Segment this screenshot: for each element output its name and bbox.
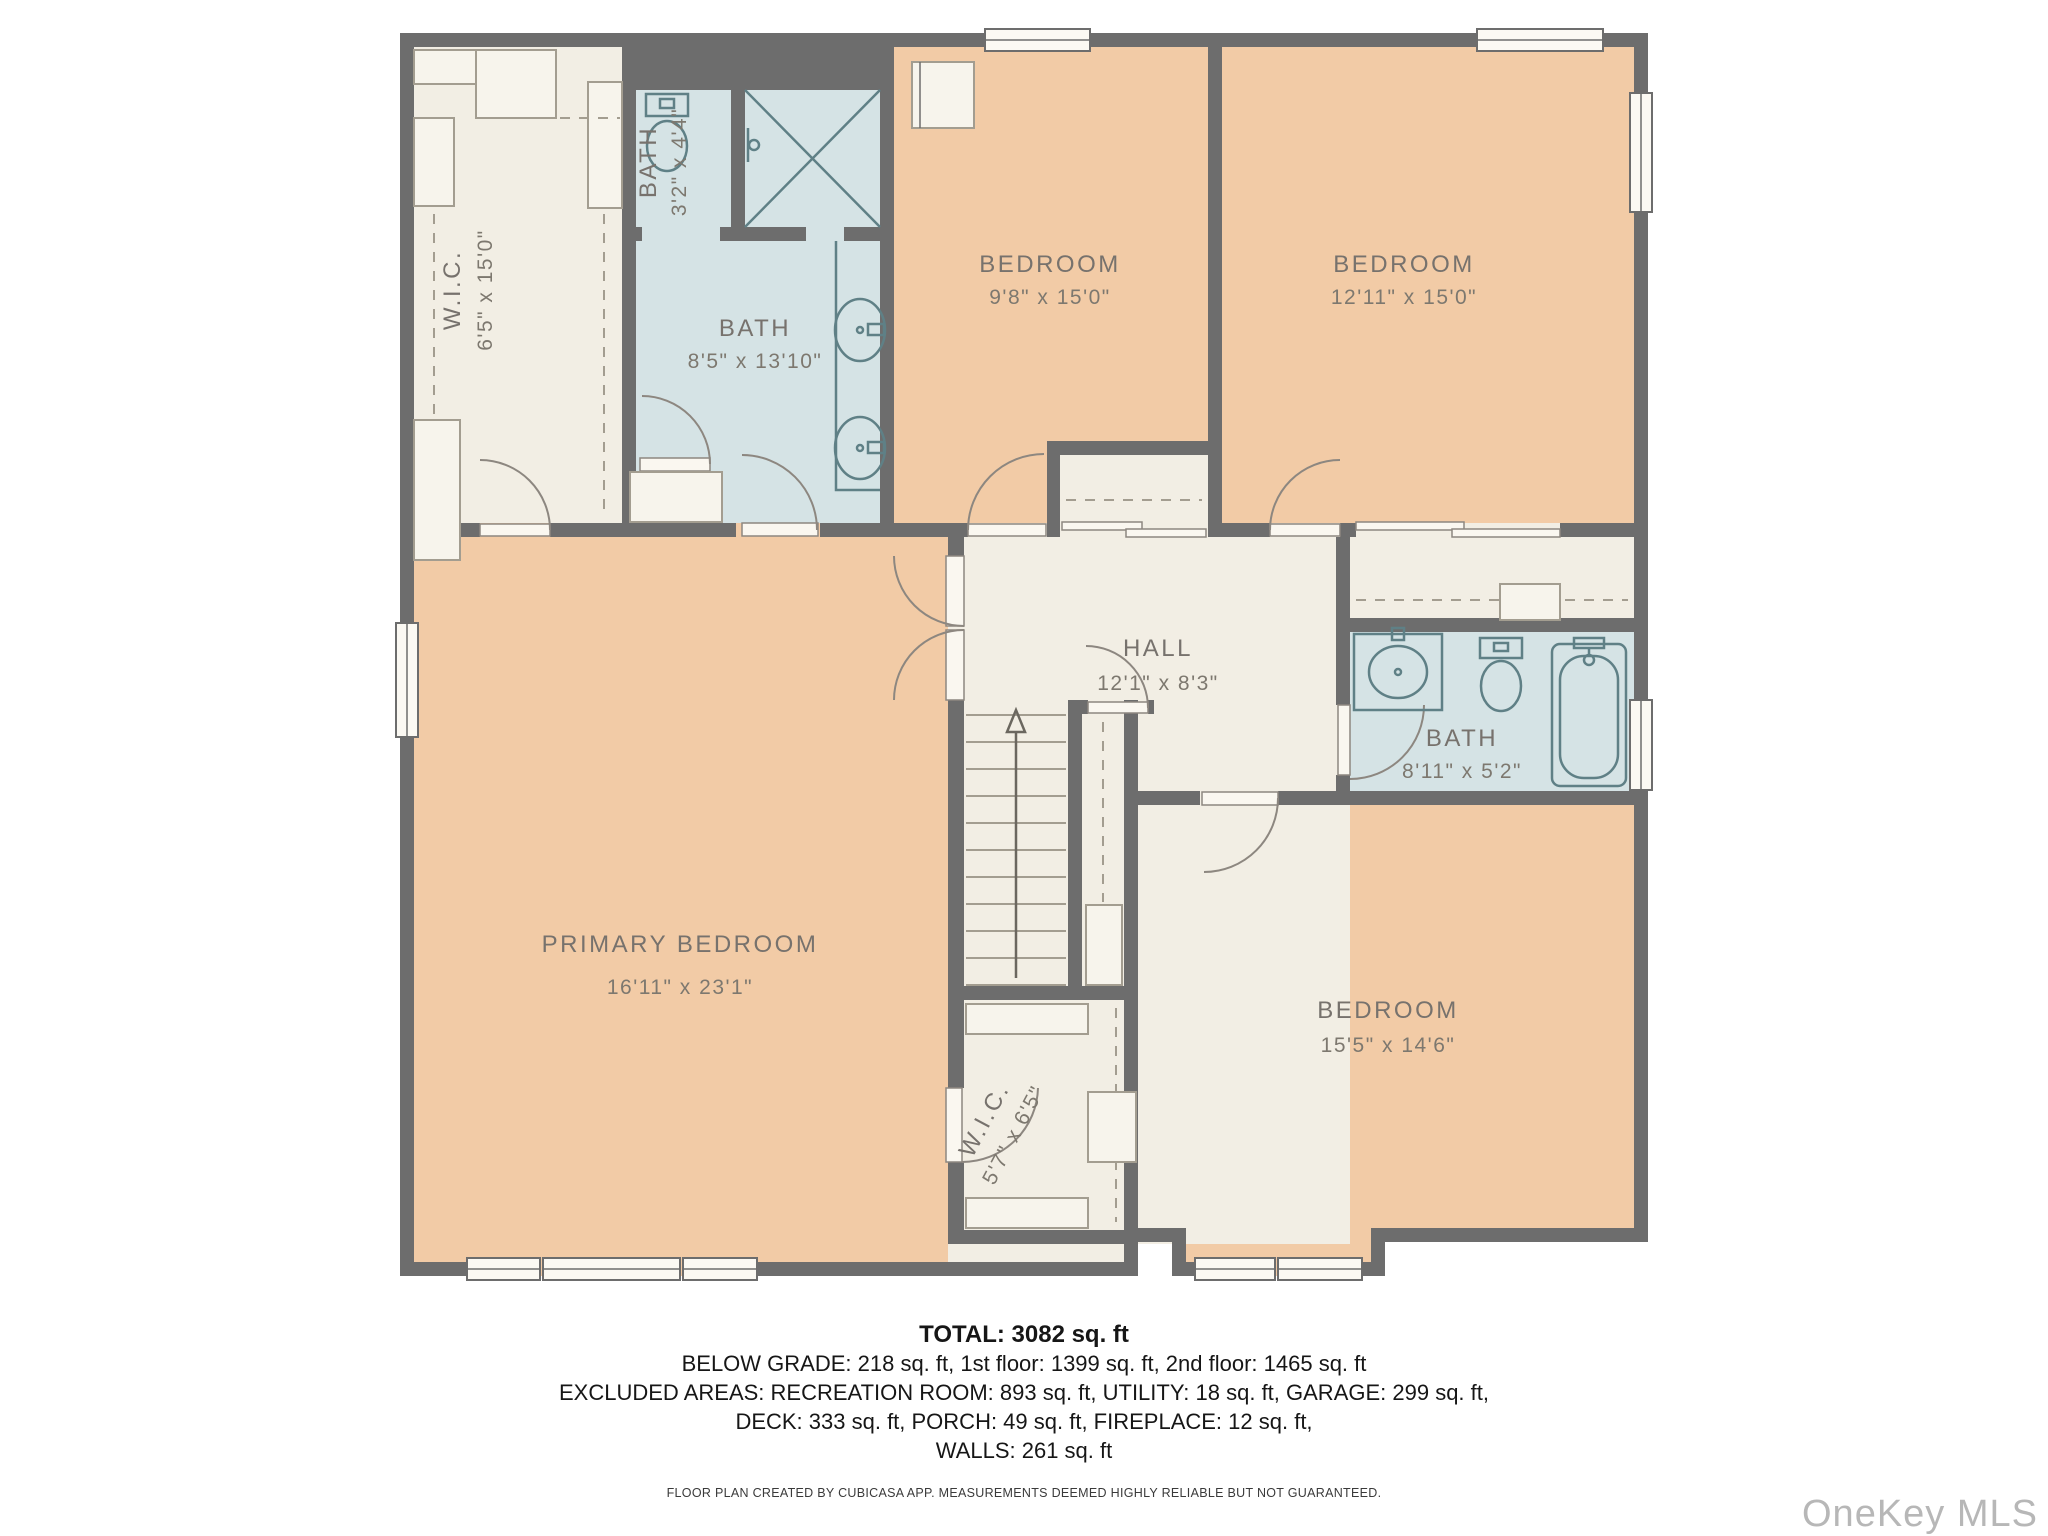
svg-text:HALL: HALL — [1123, 635, 1193, 662]
closet-box — [1088, 1092, 1136, 1162]
wardrobe-box — [1500, 584, 1560, 620]
svg-text:3'2" x 4'4": 3'2" x 4'4" — [668, 108, 691, 216]
svg-text:BEDROOM: BEDROOM — [1317, 997, 1459, 1024]
windows-primary-bottom — [467, 1258, 757, 1280]
bedroom-right-closet — [1336, 523, 1648, 632]
summary-line: EXCLUDED AREAS: RECREATION ROOM: 893 sq.… — [559, 1380, 1489, 1405]
svg-text:15'5" x 14'6": 15'5" x 14'6" — [1321, 1034, 1456, 1057]
svg-text:BEDROOM: BEDROOM — [979, 251, 1121, 278]
wardrobe-bedroom-mid — [912, 62, 974, 128]
closet-panel — [1086, 905, 1122, 985]
svg-text:BATH: BATH — [719, 315, 791, 342]
wardrobe-box — [414, 50, 476, 84]
summary-line: BELOW GRADE: 218 sq. ft, 1st floor: 1399… — [682, 1351, 1367, 1376]
window-right-bedroom-side — [1630, 93, 1652, 212]
window-bath-hall-side — [1630, 700, 1652, 790]
window-primary-left — [396, 623, 418, 737]
disclaimer-text: FLOOR PLAN CREATED BY CUBICASA APP. MEAS… — [667, 1486, 1382, 1500]
summary-line: DECK: 333 sq. ft, PORCH: 49 sq. ft, FIRE… — [735, 1409, 1312, 1434]
onekey-mls-watermark: OneKey MLS — [1802, 1493, 2038, 1535]
window-top-mid-bedroom — [985, 29, 1090, 51]
closet-shelf — [966, 1198, 1088, 1228]
wardrobe-box — [588, 82, 622, 208]
svg-text:BATH: BATH — [635, 126, 662, 198]
svg-text:16'11" x 23'1": 16'11" x 23'1" — [607, 976, 753, 999]
svg-text:9'8" x 15'0": 9'8" x 15'0" — [989, 286, 1111, 309]
windows-bedroom-bay — [1195, 1258, 1362, 1280]
room-primary-bedroom — [400, 523, 964, 1276]
svg-text:12'1" x 8'3": 12'1" x 8'3" — [1097, 672, 1219, 695]
floor-plan-page: W.I.C. 6'5" x 15'0" BATH 3'2" x 4'4" BAT… — [0, 0, 2048, 1536]
svg-text:W.I.C.: W.I.C. — [439, 250, 466, 330]
total-area-text: TOTAL: 3082 sq. ft — [919, 1321, 1129, 1348]
floor-plan-canvas: W.I.C. 6'5" x 15'0" BATH 3'2" x 4'4" BAT… — [0, 0, 2048, 1536]
window-top-right-bedroom — [1477, 29, 1603, 51]
wardrobe-box — [476, 50, 556, 118]
svg-text:12'11" x 15'0": 12'11" x 15'0" — [1331, 286, 1477, 309]
wardrobe-box — [414, 420, 460, 560]
svg-text:8'11" x 5'2": 8'11" x 5'2" — [1402, 760, 1522, 783]
svg-text:8'5" x 13'10": 8'5" x 13'10" — [688, 350, 823, 373]
summary-line: WALLS: 261 sq. ft — [936, 1438, 1113, 1463]
svg-text:BEDROOM: BEDROOM — [1333, 251, 1475, 278]
area-summary: TOTAL: 3082 sq. ft BELOW GRADE: 218 sq. … — [559, 1321, 1489, 1500]
svg-text:BATH: BATH — [1426, 725, 1498, 752]
closet-shelf — [966, 1004, 1088, 1034]
svg-text:PRIMARY BEDROOM: PRIMARY BEDROOM — [542, 931, 819, 958]
svg-text:6'5" x 15'0": 6'5" x 15'0" — [474, 229, 497, 351]
wardrobe-box — [414, 118, 454, 206]
